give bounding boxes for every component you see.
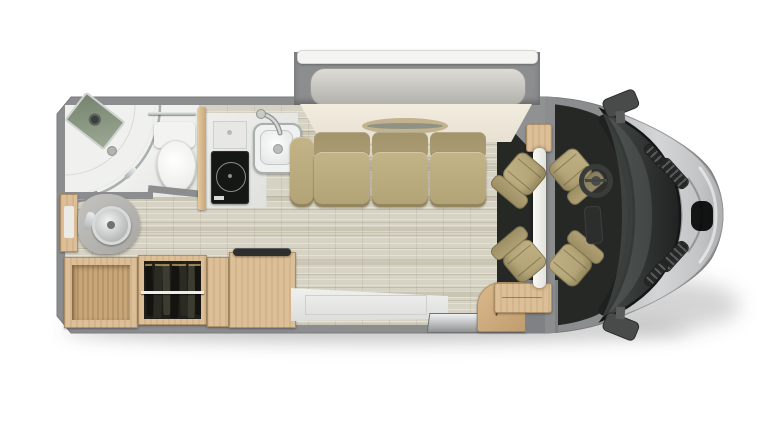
steering-wheel (579, 164, 613, 198)
sofa-seat-1 (314, 152, 370, 207)
panel-knob-icon (227, 130, 232, 135)
cabinet-shelf (72, 265, 130, 320)
cabinet-divider (207, 257, 229, 327)
sofa-armrest (290, 137, 314, 207)
shower-head-icon (86, 111, 103, 128)
wheel-spoke (585, 179, 607, 182)
burner-dot-icon (228, 174, 232, 178)
trim-drawer-line (502, 297, 542, 298)
induction-cooktop (211, 151, 249, 204)
vanity-sink-bowl (92, 206, 131, 245)
cooktop-controls (214, 196, 224, 200)
counter-flap (198, 107, 206, 210)
center-console (584, 205, 604, 244)
sofa-seat-3 (430, 152, 486, 207)
counter-panel (213, 121, 247, 149)
clothes-rod (141, 291, 204, 294)
vanity-drain-icon (107, 221, 115, 229)
wardrobe (138, 255, 207, 325)
wardrobe-interior (144, 261, 201, 319)
front-cowl (691, 201, 713, 231)
awning-bar (297, 50, 538, 64)
floorplan-canvas (0, 0, 768, 442)
panel-inset-line (305, 295, 427, 315)
sink-drain-icon (273, 144, 283, 154)
corner-cabinet (64, 257, 138, 328)
towel (64, 206, 74, 238)
refrigerator-handle (233, 248, 291, 256)
sofa-seat-2 (372, 152, 428, 207)
kitchen-faucet (252, 106, 292, 140)
entry-step-plate (427, 313, 482, 333)
murphy-bed-roll (310, 68, 526, 106)
towel-bar (148, 112, 196, 115)
sofa (288, 130, 492, 210)
bath-cabinet (60, 194, 78, 252)
shower-drain-icon (108, 147, 117, 156)
refrigerator-cabinet (229, 252, 296, 328)
